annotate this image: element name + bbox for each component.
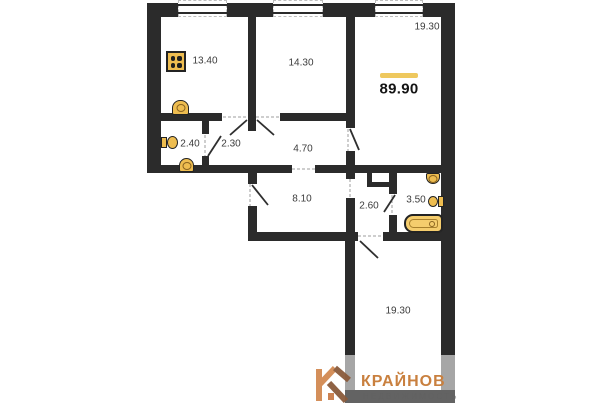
stove-icon — [166, 51, 186, 72]
kitchen-sink-icon — [172, 100, 189, 115]
room-area-label-wc-hall: 2.60 — [359, 201, 378, 212]
total-area: 89.90 — [379, 81, 418, 98]
toilet-icon — [438, 196, 444, 207]
room-area-label-bedroom-2: 19.30 — [385, 306, 410, 317]
bathtub-icon — [404, 214, 443, 233]
brand-house-icon — [314, 363, 352, 403]
toilet-icon — [428, 196, 438, 207]
wall — [345, 390, 455, 403]
room-area-label-bathroom: 3.50 — [406, 195, 425, 206]
room-area-label-bedroom-1: 14.30 — [288, 58, 313, 69]
room-area-label-hall: 2.40 — [180, 139, 199, 150]
sink-icon — [179, 158, 194, 172]
room-area-label-kitchen: 13.40 — [192, 56, 217, 67]
toilet-icon — [167, 136, 178, 149]
brand-name: КРАЙНОВ — [361, 373, 446, 391]
room-area-label-living-room: 19.30 — [414, 22, 439, 33]
door-opening — [205, 117, 392, 236]
floor-plan: 13.40 14.30 19.30 2.40 2.30 4.70 8.10 2.… — [0, 0, 605, 403]
total-area-marker — [380, 73, 418, 78]
room-area-label-hallway: 4.70 — [293, 144, 312, 155]
room-area-label-corridor: 8.10 — [292, 194, 311, 205]
room-area-label-storage: 2.30 — [221, 139, 240, 150]
